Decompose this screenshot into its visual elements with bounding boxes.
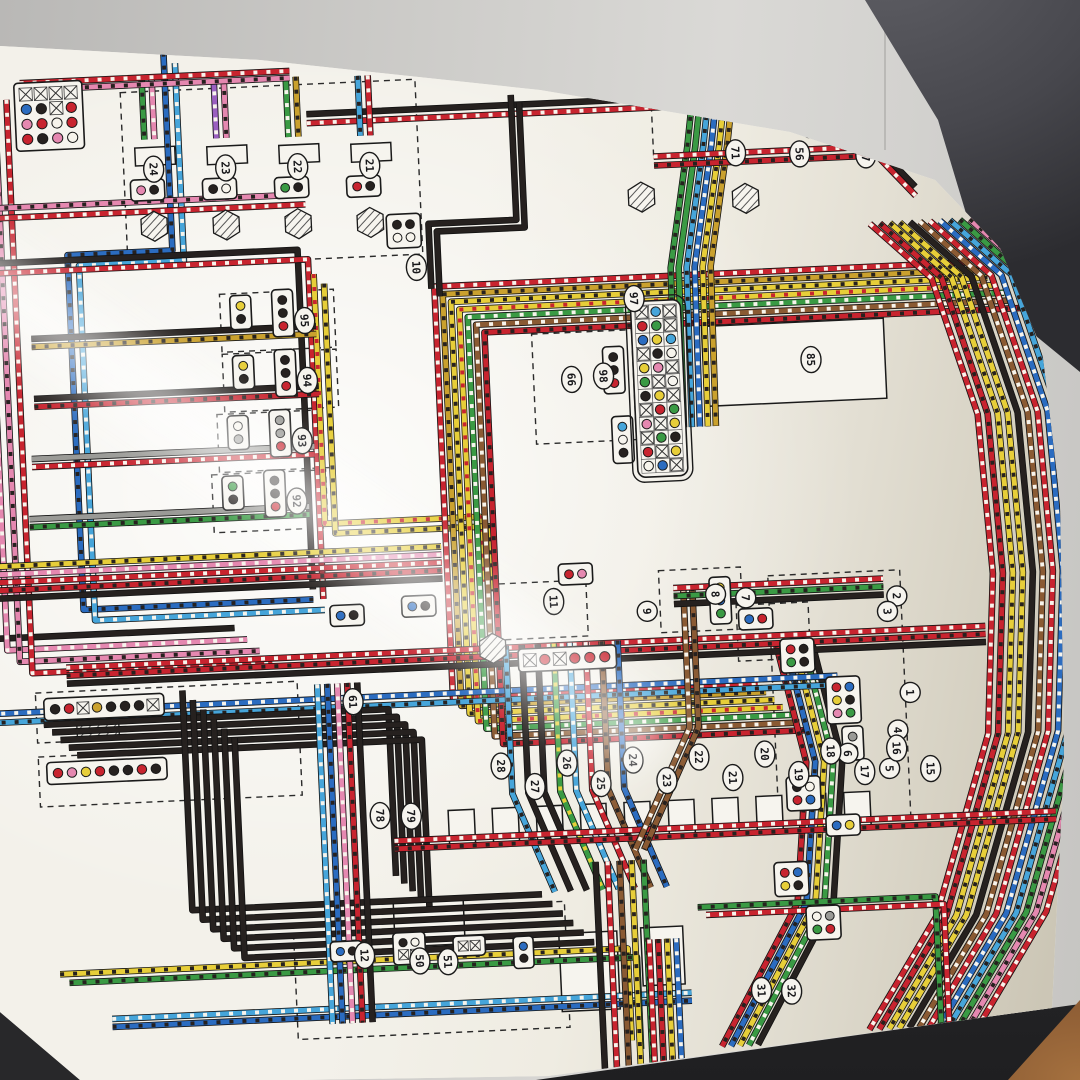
svg-text:16: 16 [889, 741, 903, 755]
svg-text:31: 31 [754, 984, 768, 998]
svg-text:4: 4 [891, 726, 904, 734]
wiring-diagram-svg: 1024232221959493929798668571565711987231… [0, 34, 1080, 1080]
svg-text:56: 56 [792, 147, 806, 161]
diagram-root: 1024232221959493929798668571565711987231… [0, 34, 1080, 1080]
svg-text:97: 97 [627, 292, 641, 306]
svg-text:6: 6 [841, 750, 854, 758]
svg-text:21: 21 [362, 159, 376, 173]
svg-text:66: 66 [564, 373, 578, 387]
svg-text:28: 28 [494, 759, 508, 773]
svg-text:95: 95 [297, 314, 311, 328]
svg-text:2: 2 [890, 592, 903, 599]
svg-text:32: 32 [784, 984, 798, 998]
svg-text:5: 5 [882, 765, 895, 772]
svg-text:7: 7 [739, 594, 752, 601]
svg-text:18: 18 [823, 744, 837, 758]
svg-text:27: 27 [528, 780, 542, 794]
svg-text:22: 22 [692, 750, 706, 764]
svg-text:3: 3 [880, 608, 893, 615]
svg-text:19: 19 [792, 768, 806, 782]
svg-text:22: 22 [290, 160, 304, 174]
svg-text:1: 1 [903, 689, 916, 697]
svg-text:8: 8 [708, 591, 721, 598]
photo-backdrop: 1024232221959493929798668571565711987231… [0, 0, 1080, 1080]
svg-text:85: 85 [804, 353, 818, 367]
svg-text:9: 9 [640, 608, 653, 615]
svg-text:71: 71 [728, 146, 742, 160]
svg-text:23: 23 [660, 774, 674, 788]
svg-text:21: 21 [726, 771, 740, 785]
svg-text:23: 23 [218, 161, 232, 175]
svg-text:15: 15 [923, 762, 937, 776]
svg-text:20: 20 [758, 747, 772, 761]
svg-text:61: 61 [346, 695, 360, 709]
svg-text:24: 24 [146, 162, 160, 176]
svg-text:94: 94 [300, 374, 314, 388]
svg-text:50: 50 [413, 954, 427, 968]
svg-text:78: 78 [373, 809, 387, 823]
svg-text:17: 17 [857, 765, 871, 779]
svg-text:79: 79 [404, 809, 418, 823]
svg-text:98: 98 [596, 369, 610, 383]
svg-text:12: 12 [357, 949, 371, 963]
svg-text:51: 51 [441, 955, 455, 969]
wiring-diagram: 1024232221959493929798668571565711987231… [0, 34, 1080, 1080]
svg-text:10: 10 [409, 261, 423, 275]
